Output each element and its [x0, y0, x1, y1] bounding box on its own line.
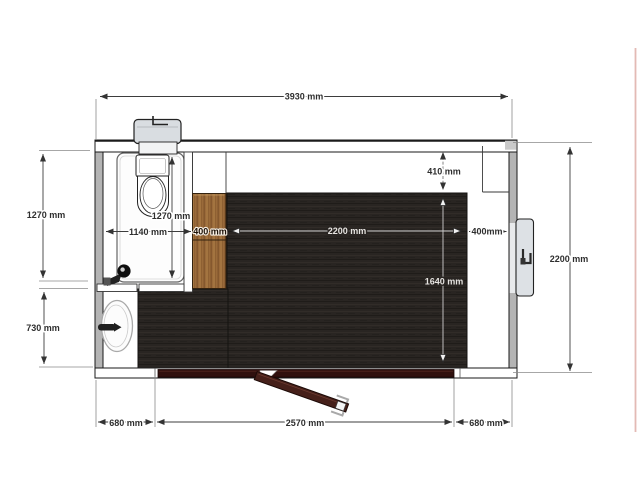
toilet-bowl-inner: [143, 179, 163, 209]
door-sill: [158, 370, 454, 378]
label-wc-width: 1140 mm: [129, 227, 167, 237]
top-right-corner-shade: [505, 141, 517, 150]
label-overall-height: 2200 mm: [550, 254, 589, 264]
cabinet: [193, 194, 227, 289]
label-cabinet-width: 400 mm: [193, 227, 227, 237]
wc-partition-wall: [184, 152, 193, 292]
label-door-opening: 2570 mm: [286, 418, 325, 428]
floorplan-drawing: 3930 mm 1270 mm 730 mm 1270 mm 1140 mm 4…: [0, 0, 640, 480]
exterior-heater-box: [510, 219, 534, 296]
left-wall: [95, 140, 103, 378]
label-wc-height-outer: 1270 mm: [27, 210, 66, 220]
photo-edge-line: [635, 48, 637, 432]
label-right-offset: 400mm: [471, 227, 502, 237]
label-wc-height-inner: 1270 mm: [152, 211, 191, 221]
cistern: [134, 120, 181, 144]
label-main-width: 2200 mm: [328, 226, 367, 236]
wc-threshold-left: [97, 284, 137, 292]
label-top-offset: 410 mm: [427, 167, 461, 177]
floorplan-canvas: 3930 mm 1270 mm 730 mm 1270 mm 1140 mm 4…: [0, 0, 640, 480]
label-basin-zone: 730 mm: [26, 323, 60, 333]
cistern-connector: [139, 142, 177, 154]
faucet-icon: [98, 324, 116, 331]
label-bottom-left: 680 mm: [109, 418, 143, 428]
label-bottom-right: 680 mm: [469, 418, 503, 428]
label-main-depth: 1640 mm: [425, 277, 464, 287]
label-overall-width: 3930 mm: [285, 92, 324, 102]
wc-threshold-right: [139, 284, 184, 292]
